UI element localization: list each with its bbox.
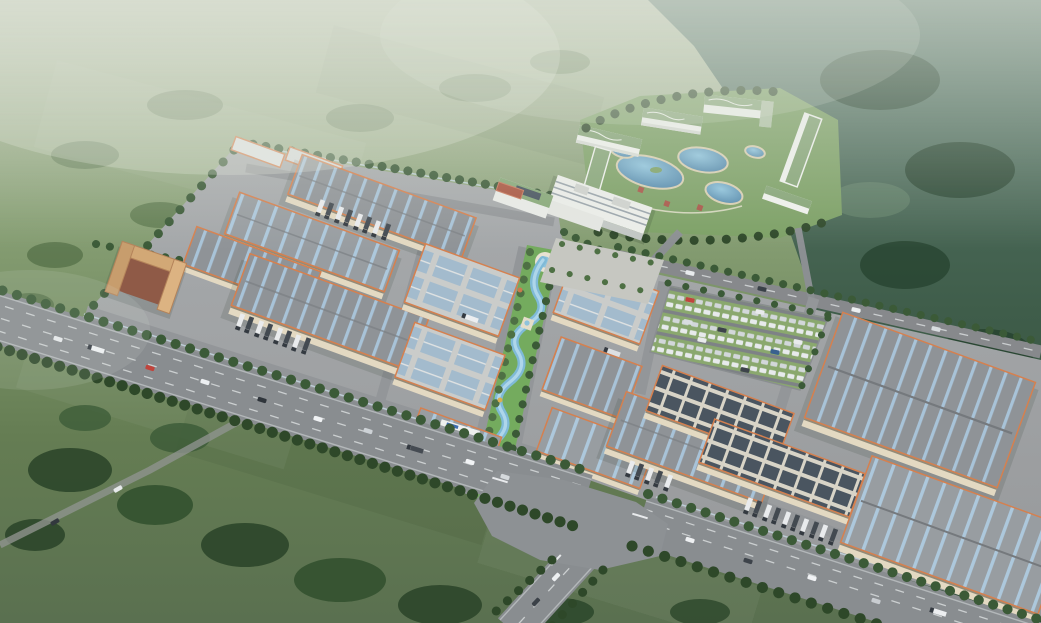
lagoon-island — [650, 167, 662, 173]
aerial-render — [0, 0, 1041, 623]
